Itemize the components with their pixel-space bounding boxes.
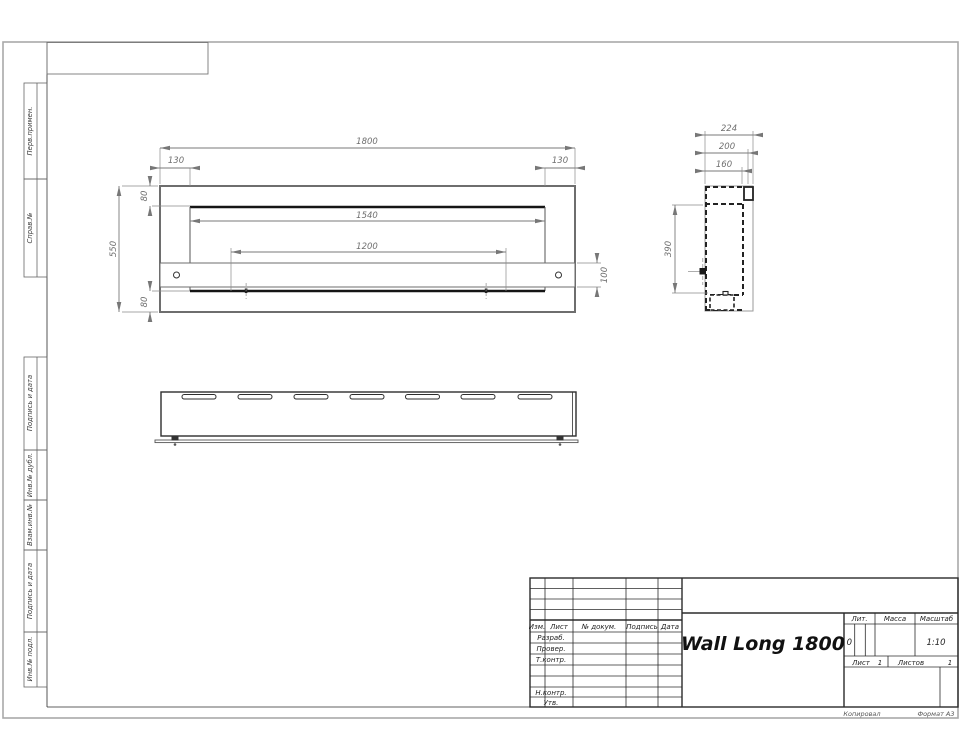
dim-front-offset-right: 130	[552, 156, 568, 166]
foot-screw-right	[559, 443, 562, 446]
foot-right	[557, 436, 564, 441]
dim-depth: 224	[721, 124, 737, 134]
col-list: Лист	[549, 623, 569, 631]
lit-value: 0	[847, 638, 852, 648]
page-border	[3, 42, 958, 718]
side-top-bracket	[744, 187, 753, 200]
side-bottom-box-tab	[723, 292, 728, 296]
mass-label: Масса	[884, 615, 906, 623]
footer-copied: Копировал	[843, 710, 880, 718]
burner-tray-band	[160, 263, 575, 287]
sheet-label: Лист	[851, 659, 871, 667]
dim-front-width: 1800	[356, 137, 378, 147]
dim-tray-width: 1200	[356, 242, 378, 252]
dim-opening-width: 1540	[356, 211, 378, 221]
dim-depth-step2: 160	[716, 160, 732, 170]
margin-label: Справ.№	[26, 213, 34, 244]
margin-label: Перв.примен.	[26, 107, 34, 156]
dim-front-offset-left: 130	[168, 156, 184, 166]
foot-screw-left	[174, 443, 177, 446]
tray-button-right	[556, 272, 562, 278]
dim-depth-step1: 200	[719, 142, 735, 152]
col-date: Дата	[660, 623, 679, 631]
sheets-label: Листов	[897, 659, 924, 667]
margin-label: Инв.№ подл.	[26, 637, 34, 682]
dim-tray-height: 100	[600, 267, 610, 283]
row-tkontr: Т.контр.	[536, 656, 566, 664]
margin-label: Взам.инв.№	[26, 504, 34, 546]
row-prover: Провер.	[536, 645, 565, 653]
col-sign: Подпись	[626, 623, 658, 631]
side-bottom-box	[710, 295, 734, 310]
drawing-sheet: Перв.примен. Справ.№ Подпись и дата Инв.…	[0, 0, 970, 749]
col-doc: № докум.	[581, 623, 617, 631]
dim-bottom-offset: 80	[140, 297, 150, 308]
row-nkontr: Н.контр.	[535, 689, 566, 697]
row-utv: Утв.	[544, 699, 559, 707]
sheets-value: 1	[948, 659, 952, 667]
margin-label: Инв.№ дубл.	[26, 453, 34, 497]
dim-front-height: 550	[109, 241, 119, 257]
foot-left	[172, 436, 179, 441]
sheet-value: 1	[878, 659, 882, 667]
scale-value: 1:10	[926, 638, 945, 648]
footer-format: Формат А3	[917, 710, 954, 718]
document-title: Wall Long 1800	[681, 633, 845, 655]
lit-label: Лит.	[850, 615, 867, 623]
margin-label: Подпись и дата	[26, 563, 34, 619]
dim-side-height: 390	[664, 241, 674, 257]
scale-label: Масштаб	[920, 615, 954, 623]
col-izm: Изм.	[529, 623, 545, 631]
dim-top-offset: 80	[140, 191, 150, 202]
row-razrab: Разраб.	[537, 634, 565, 642]
base-plate	[155, 440, 578, 443]
margin-label: Подпись и дата	[26, 375, 34, 431]
drawing-canvas: Перв.примен. Справ.№ Подпись и дата Инв.…	[0, 0, 970, 749]
tray-button-left	[174, 272, 180, 278]
